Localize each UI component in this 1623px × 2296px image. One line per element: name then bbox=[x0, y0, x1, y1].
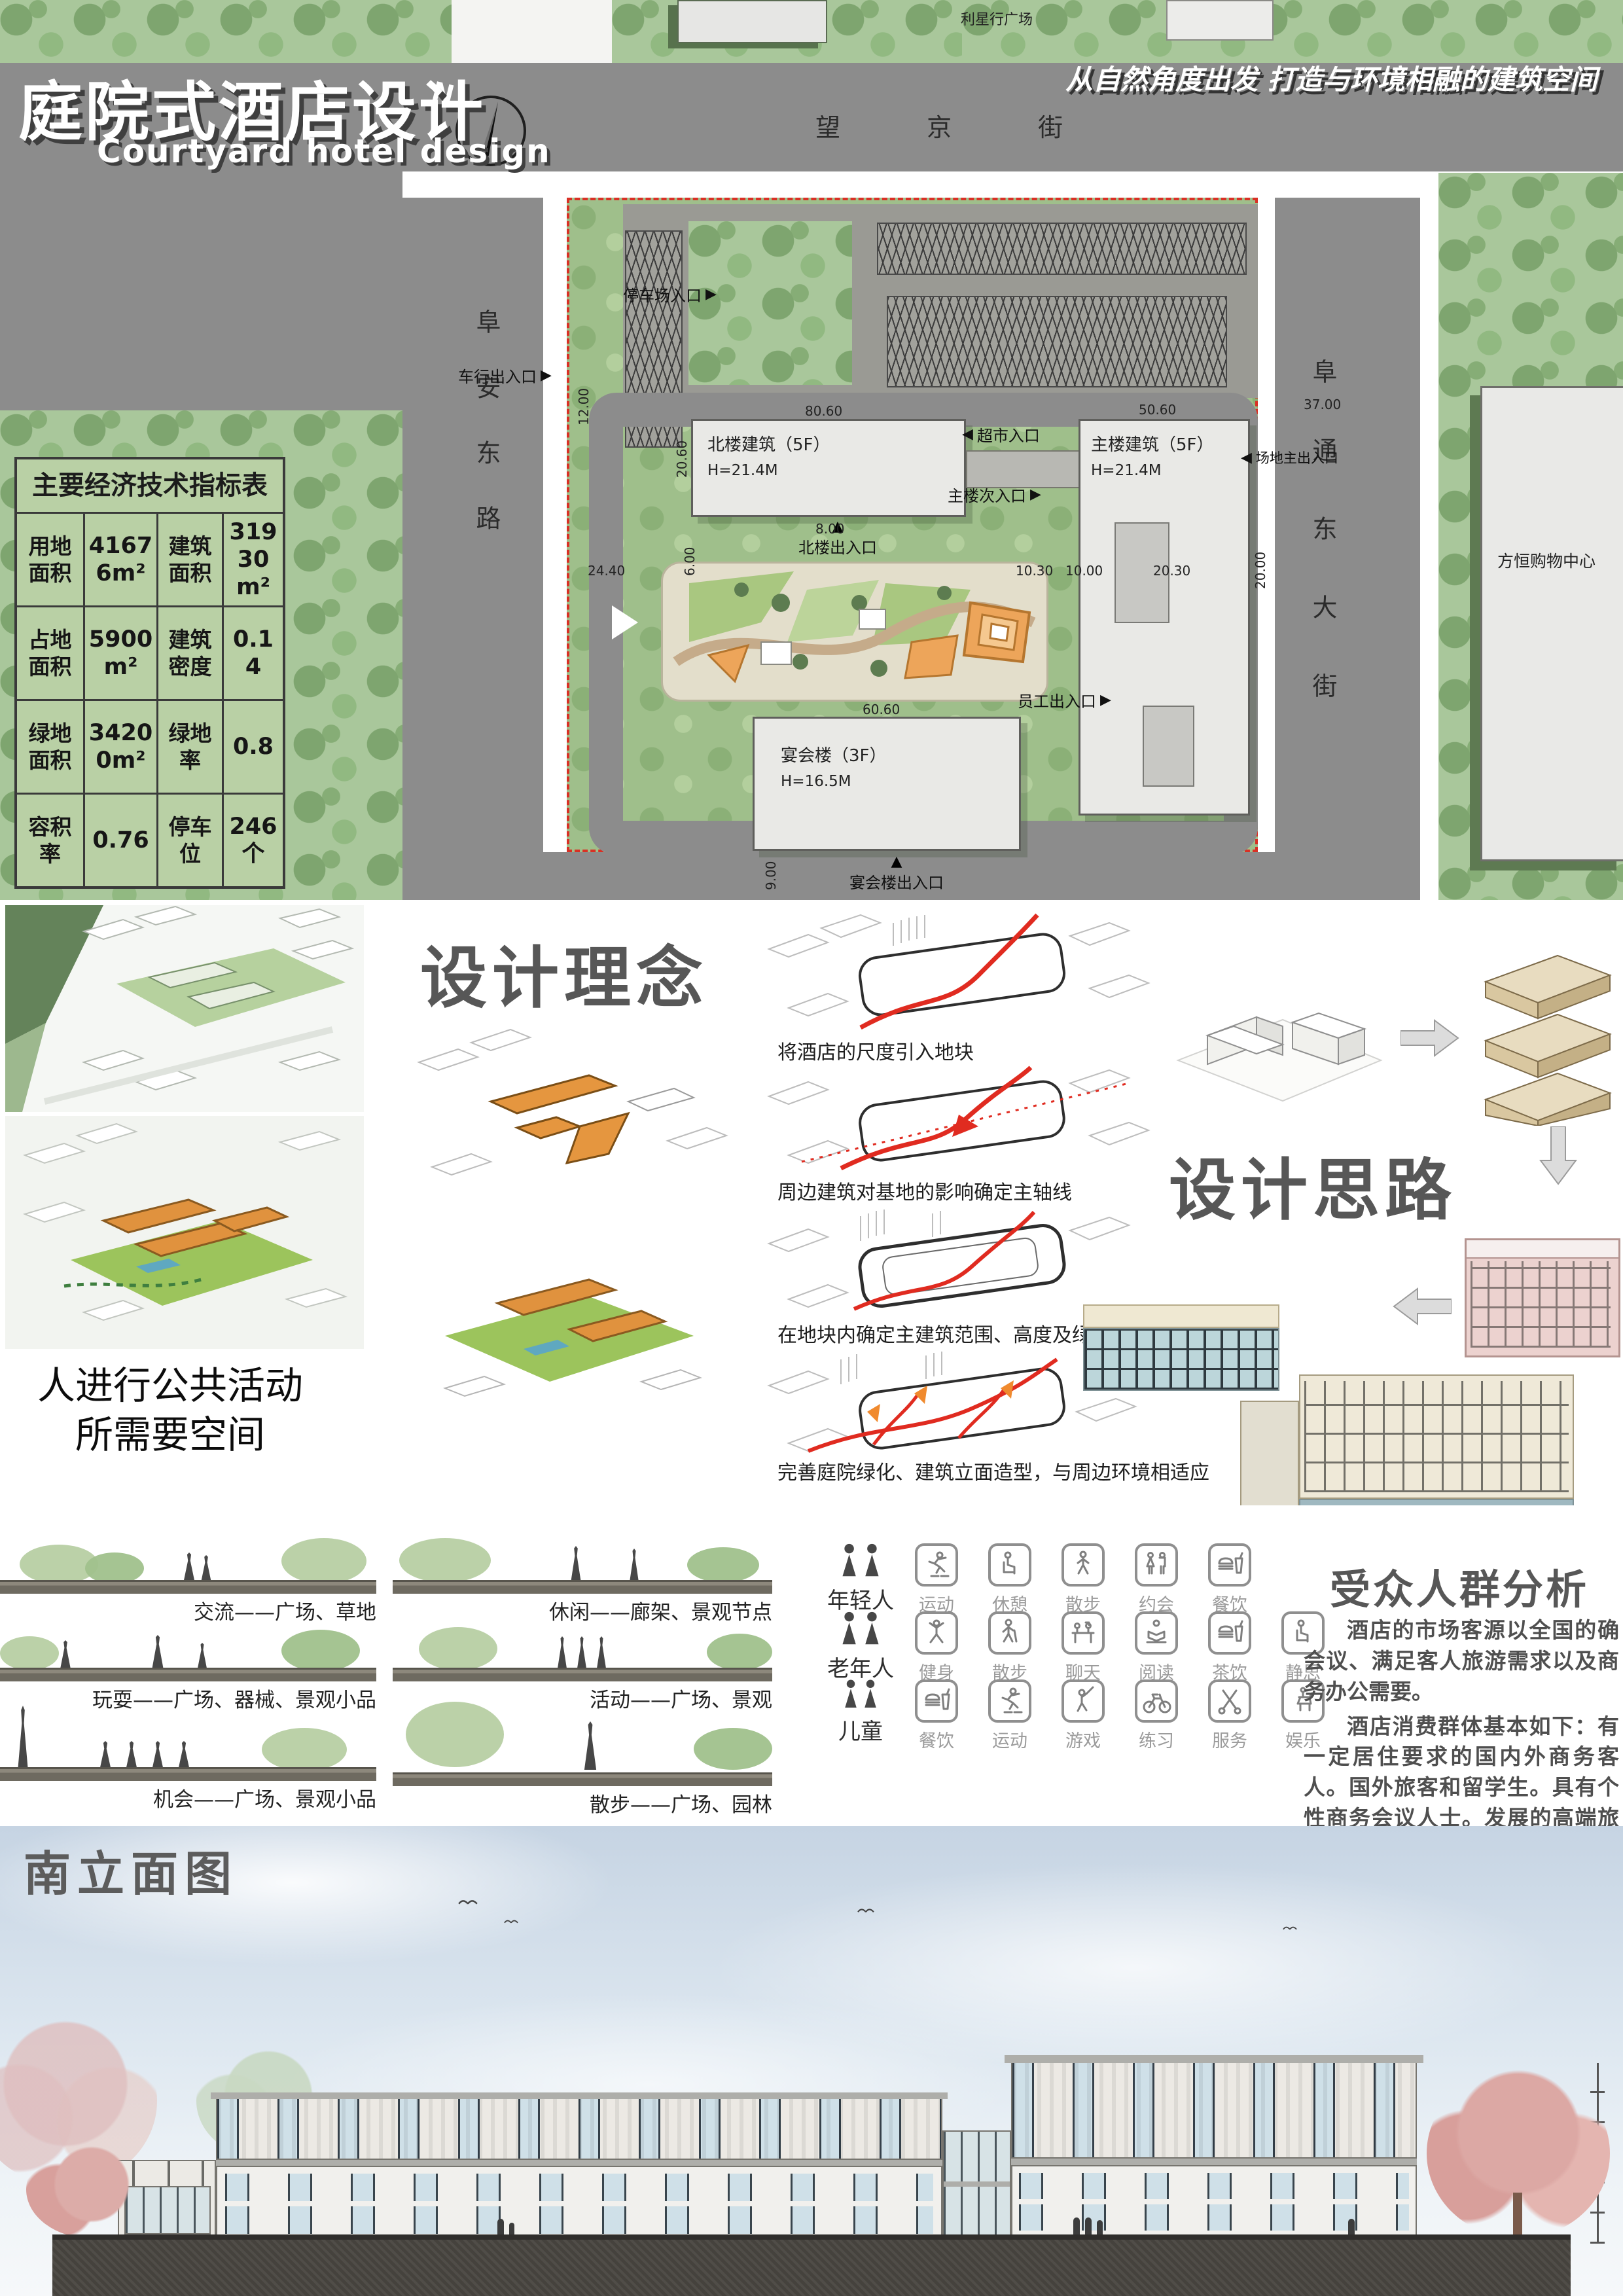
activity-label: 玩耍——广场、器械、景观小品 bbox=[10, 1683, 376, 1713]
activity-label: 休闲——廊架、景观节点 bbox=[406, 1596, 772, 1625]
dimension-label: 60.60 bbox=[863, 702, 900, 717]
activity-icon-cell: 服务 bbox=[1208, 1679, 1266, 1752]
people-silhouette bbox=[151, 1635, 165, 1668]
presentation-board: 利星行广场 方恒购物中心 望 京 街 阜安东路 阜通东大街 N 庭院式酒店设计 … bbox=[0, 0, 1623, 2296]
banquet-building-name: 宴会楼（3F） bbox=[781, 742, 1019, 766]
road-east bbox=[1275, 173, 1420, 900]
skating-icon bbox=[921, 1549, 952, 1581]
table-cell: 占地面积 bbox=[17, 607, 85, 701]
table-cell: 建筑密度 bbox=[158, 607, 224, 701]
section-ground bbox=[393, 1772, 772, 1786]
landscape-bush bbox=[0, 1636, 59, 1670]
landscape-bush bbox=[281, 1538, 366, 1584]
final-building-windows bbox=[1304, 1381, 1569, 1492]
stroll-icon bbox=[994, 1617, 1026, 1649]
table-cell: 246个 bbox=[224, 795, 283, 888]
table-cell: 41676m² bbox=[85, 514, 158, 607]
window-row bbox=[225, 2174, 933, 2201]
concept-title: 设计理念 bbox=[420, 925, 708, 1021]
table-cell: 0.14 bbox=[224, 607, 283, 701]
entrance-main-secondary: 主楼次入口▶ bbox=[948, 483, 1041, 506]
window-row bbox=[1019, 2173, 1409, 2199]
activity-label: 机会——广场、景观小品 bbox=[10, 1783, 376, 1812]
main-building: 主楼建筑（5F） H=21.4M bbox=[1079, 419, 1250, 816]
analysis-caption-2: 周边建筑对基地的影响确定主轴线 bbox=[777, 1176, 1072, 1205]
street-west-label: 阜安东路 bbox=[469, 309, 505, 571]
main-building-name: 主楼建筑（5F） bbox=[1091, 431, 1248, 456]
sidewalk bbox=[543, 198, 568, 852]
people-silhouette bbox=[576, 1636, 588, 1668]
analysis-diagram-3 bbox=[762, 1204, 1168, 1317]
people-silhouette bbox=[596, 1636, 607, 1668]
mall-building bbox=[1480, 386, 1623, 861]
concept-section: 人进行公共活动 所需要空间 设计理念 bbox=[0, 900, 1623, 1505]
sidewalk bbox=[1420, 198, 1438, 900]
chatting-icon bbox=[1067, 1617, 1099, 1649]
ground-line bbox=[52, 2234, 1571, 2240]
table-cell: 停车位 bbox=[158, 795, 224, 888]
table-cell: 5900m² bbox=[85, 607, 158, 701]
elevation-right-building bbox=[1011, 2062, 1417, 2237]
dining-icon bbox=[1214, 1549, 1245, 1581]
table-cell: 建筑面积 bbox=[158, 514, 224, 607]
people-silhouette bbox=[151, 1741, 165, 1768]
entrance-staff: 员工出入口▶ bbox=[1018, 689, 1111, 711]
bird-icon bbox=[458, 1897, 478, 1906]
dimension-label: 8.00 bbox=[815, 521, 845, 537]
north-building-name: 北楼建筑（5F） bbox=[707, 431, 964, 456]
cycling-icon bbox=[1141, 1685, 1172, 1717]
context-building bbox=[1166, 0, 1274, 41]
entrance-banquet: ▲ 宴会楼出入口 bbox=[825, 853, 969, 893]
people-silhouette bbox=[196, 1643, 208, 1668]
massing-tan bbox=[1472, 942, 1623, 1126]
table-cell: 0.8 bbox=[224, 701, 283, 795]
people-silhouette bbox=[177, 1741, 191, 1768]
west-entry-arrow bbox=[612, 605, 638, 639]
activity-icon-cell: 餐饮 bbox=[915, 1679, 972, 1752]
road-junction bbox=[0, 173, 402, 410]
concept-diagram-2 bbox=[406, 1218, 733, 1421]
arrow-icon: ◀ bbox=[1241, 450, 1252, 466]
activity-icon-cell: 阅读 bbox=[1135, 1611, 1192, 1684]
pink-building-windows bbox=[1471, 1261, 1611, 1348]
process-arrow-down bbox=[1538, 1126, 1578, 1185]
section-ground bbox=[393, 1668, 772, 1681]
parking-stalls bbox=[877, 223, 1247, 275]
people-silhouette bbox=[200, 1555, 213, 1581]
activity-icon-cell: 餐饮 bbox=[1208, 1543, 1266, 1616]
arrow-icon: ▶ bbox=[1030, 486, 1041, 503]
table-cell: 34200m² bbox=[85, 701, 158, 795]
arrow-icon: ◀ bbox=[962, 426, 973, 442]
activity-section: 交流——广场、草地 玩耍——广场、器械、景观小品 机会——广场、景观小品 休闲—… bbox=[0, 1505, 1623, 1826]
landscape-bush bbox=[406, 1702, 504, 1767]
fitness-icon bbox=[921, 1617, 952, 1649]
arrow-icon: ▶ bbox=[541, 367, 552, 384]
section-ground bbox=[0, 1767, 376, 1781]
table-cell: 用地面积 bbox=[17, 514, 85, 607]
table-cell: 31930m² bbox=[224, 514, 283, 607]
people-silhouette bbox=[182, 1552, 196, 1581]
people-silhouette bbox=[124, 1741, 139, 1768]
window-row bbox=[225, 2206, 933, 2234]
courtyard-garden bbox=[661, 562, 1048, 702]
concept-note-line2: 所需要空间 bbox=[26, 1410, 314, 1460]
parking-stalls bbox=[887, 296, 1227, 387]
bird-icon bbox=[857, 1906, 874, 1914]
children-icon bbox=[834, 1678, 887, 1711]
people-silhouette bbox=[556, 1636, 568, 1668]
landscape-bush bbox=[687, 1547, 759, 1583]
people-silhouette bbox=[628, 1549, 640, 1581]
aerial-view-1 bbox=[5, 905, 364, 1112]
activity-icon-cell: 茶饮 bbox=[1208, 1611, 1266, 1684]
main-building-height: H=21.4M bbox=[1091, 462, 1248, 479]
landscape-bush bbox=[262, 1728, 347, 1771]
activity-icon-cell: 聊天 bbox=[1061, 1611, 1119, 1684]
arrow-icon: ▶ bbox=[1100, 692, 1111, 708]
entrance-site-main: ◀场地主出入口 bbox=[1241, 448, 1338, 467]
section-ground bbox=[393, 1580, 772, 1594]
dimension-label: 80.60 bbox=[805, 403, 842, 419]
dimension-label: 37.00 bbox=[1304, 397, 1341, 412]
activity-icon-cell: 运动 bbox=[988, 1679, 1046, 1752]
audience-paragraph: 酒店的市场客源以全国的确会议、满足客人旅游需求以及商务办公需要。 bbox=[1304, 1615, 1619, 1708]
pink-tree bbox=[26, 2140, 157, 2238]
activity-icon-cell: 练习 bbox=[1135, 1679, 1192, 1752]
dimension-label: 20.00 bbox=[1253, 552, 1268, 589]
elevation-left-building bbox=[216, 2098, 942, 2237]
banquet-building-height: H=16.5M bbox=[781, 773, 1019, 790]
people-silhouette bbox=[59, 1640, 72, 1668]
green-block bbox=[962, 0, 1623, 63]
aerial-view-2 bbox=[5, 1116, 364, 1349]
activity-label: 交流——广场、草地 bbox=[10, 1596, 376, 1625]
tree-trunk bbox=[1513, 2193, 1522, 2238]
render-pink-building bbox=[1465, 1238, 1620, 1357]
analysis-diagram-1 bbox=[762, 910, 1168, 1034]
dimension-label: 12.00 bbox=[576, 388, 592, 425]
board-slogan: 从自然角度出发 打造与环境相融的建筑空间 bbox=[1065, 58, 1597, 98]
mall-label: 方恒购物中心 bbox=[1497, 548, 1596, 572]
arrow-icon: ▶ bbox=[705, 286, 717, 302]
skating-icon bbox=[994, 1685, 1026, 1717]
group-children: 儿童 bbox=[815, 1678, 906, 1746]
people-silhouette bbox=[16, 1706, 29, 1768]
north-building: 北楼建筑（5F） H=21.4M bbox=[691, 419, 966, 517]
landscape-bush bbox=[419, 1627, 497, 1670]
people-silhouette bbox=[582, 1721, 598, 1770]
dimension-label: 10.00 bbox=[1065, 563, 1103, 579]
group-young: 年轻人 bbox=[815, 1542, 906, 1615]
games-icon bbox=[1067, 1685, 1099, 1717]
section-ground bbox=[0, 1580, 376, 1594]
north-building-height: H=21.4M bbox=[707, 462, 964, 479]
people-silhouette bbox=[98, 1741, 113, 1768]
site-plan-section: 利星行广场 方恒购物中心 望 京 街 阜安东路 阜通东大街 N 庭院式酒店设计 … bbox=[0, 0, 1623, 900]
landscape-bush bbox=[694, 1728, 772, 1770]
concept-note: 人进行公共活动 所需要空间 bbox=[26, 1361, 314, 1460]
indicator-table-title: 主要经济技术指标表 bbox=[17, 459, 283, 514]
dating-icon bbox=[1141, 1549, 1172, 1581]
activity-label: 散步——广场、园林 bbox=[406, 1788, 772, 1818]
analysis-caption-1: 将酒店的尺度引入地块 bbox=[777, 1036, 974, 1065]
landscape-bush bbox=[85, 1552, 144, 1584]
section-ground bbox=[0, 1668, 376, 1681]
massing-white bbox=[1171, 982, 1387, 1106]
arrow-icon: ▲ bbox=[825, 853, 969, 870]
elevation-section: 南立面图 bbox=[0, 1826, 1623, 2296]
plaza-label: 利星行广场 bbox=[961, 8, 1033, 29]
tea-icon bbox=[1214, 1617, 1245, 1649]
resting-icon bbox=[994, 1549, 1026, 1581]
glazed-link bbox=[942, 2130, 1011, 2237]
dimension-label: 24.40 bbox=[588, 563, 625, 579]
dimension-label: 9.00 bbox=[763, 861, 779, 890]
activity-icon-cell: 约会 bbox=[1135, 1543, 1192, 1616]
entrance-supermarket: ◀超市入口 bbox=[962, 423, 1040, 446]
audience-title: 受众人群分析 bbox=[1330, 1556, 1589, 1615]
dining-icon bbox=[921, 1685, 952, 1717]
activity-icon-cell: 休憩 bbox=[988, 1543, 1046, 1616]
table-cell: 绿地率 bbox=[158, 701, 224, 795]
bird-icon bbox=[1283, 1924, 1297, 1931]
bird-icon bbox=[504, 1918, 518, 1924]
activity-icon-cell: 散步 bbox=[1061, 1543, 1119, 1616]
elevation-title: 南立面图 bbox=[24, 1835, 238, 1904]
reading-icon bbox=[1141, 1617, 1172, 1649]
walking-icon bbox=[1067, 1549, 1099, 1581]
activity-icon-cell: 游戏 bbox=[1061, 1679, 1119, 1752]
main-building-court bbox=[1143, 706, 1194, 787]
dimension-label: 20.30 bbox=[1153, 563, 1190, 579]
concept-diagram-1 bbox=[393, 1023, 746, 1217]
service-icon bbox=[1214, 1685, 1245, 1717]
elderly-people-icon bbox=[829, 1610, 892, 1648]
dimension-label: 20.60 bbox=[674, 440, 690, 478]
banquet-building: 宴会楼（3F） H=16.5M bbox=[753, 717, 1021, 851]
green-block bbox=[0, 0, 452, 63]
process-arrow-right bbox=[1400, 1018, 1459, 1058]
dimension-label: 50.60 bbox=[1139, 402, 1176, 418]
young-people-icon bbox=[829, 1542, 892, 1580]
concept-note-line1: 人进行公共活动 bbox=[26, 1361, 314, 1410]
group-children-label: 儿童 bbox=[815, 1713, 906, 1746]
people-silhouette bbox=[569, 1546, 582, 1581]
group-elderly: 老年人 bbox=[815, 1610, 906, 1683]
indicator-table: 主要经济技术指标表 用地面积 41676m² 建筑面积 31930m² 占地面积… bbox=[14, 457, 285, 889]
analysis-caption-4: 完善庭院绿化、建筑立面造型，与周边环境相适应 bbox=[777, 1456, 1209, 1485]
table-cell: 0.76 bbox=[85, 795, 158, 888]
dimension-label: 10.30 bbox=[1016, 563, 1053, 579]
entrance-parking: 停车场入口▶ bbox=[623, 283, 717, 306]
landscape-bush bbox=[399, 1538, 491, 1583]
activity-icon-cell: 运动 bbox=[915, 1543, 972, 1616]
context-building bbox=[677, 0, 827, 43]
street-east-label: 阜通东大街 bbox=[1305, 359, 1341, 751]
landscape-bush bbox=[707, 1634, 772, 1670]
dimension-label: 6.00 bbox=[682, 547, 698, 576]
sidewalk bbox=[1258, 198, 1275, 852]
street-north-label: 望 京 街 bbox=[815, 107, 1102, 143]
process-arrow-left bbox=[1393, 1286, 1452, 1327]
table-cell: 绿地面积 bbox=[17, 701, 85, 795]
activity-icon-cell: 散步 bbox=[988, 1611, 1046, 1684]
analysis-diagram-2 bbox=[762, 1064, 1168, 1174]
board-title-en: Courtyard hotel design bbox=[97, 132, 551, 170]
process-title: 设计思路 bbox=[1169, 1137, 1457, 1233]
ground-band bbox=[52, 2240, 1571, 2296]
table-cell: 容积率 bbox=[17, 795, 85, 888]
entrance-vehicle: 车行出入口▶ bbox=[458, 364, 552, 387]
activity-icon-cell: 健身 bbox=[915, 1611, 972, 1684]
landscape-bush bbox=[281, 1630, 360, 1672]
